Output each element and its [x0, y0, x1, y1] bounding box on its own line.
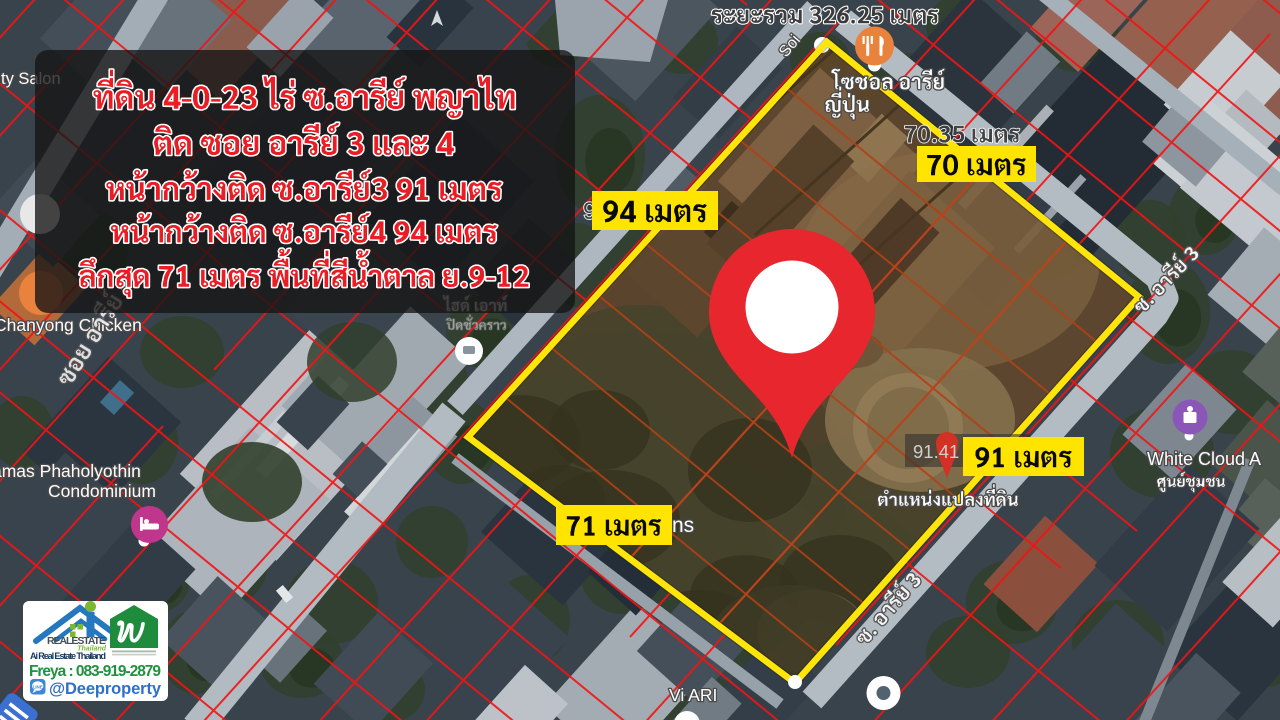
- svg-text:Condominium: Condominium: [48, 481, 156, 501]
- svg-text:@Deeproperty: @Deeproperty: [49, 680, 162, 698]
- svg-text:Freya : 083-919-2879: Freya : 083-919-2879: [29, 663, 161, 680]
- svg-text:Ai Real Estate Thailand: Ai Real Estate Thailand: [30, 651, 106, 661]
- svg-text:LINE: LINE: [33, 685, 43, 690]
- svg-text:amas Phaholyothin: amas Phaholyothin: [0, 461, 141, 481]
- svg-text:ns: ns: [672, 514, 694, 537]
- svg-text:White Cloud A: White Cloud A: [1147, 449, 1261, 469]
- svg-text:Vi ARI: Vi ARI: [669, 685, 717, 705]
- svg-text:91.41: 91.41: [913, 441, 959, 462]
- svg-text:Chanyong Chicken: Chanyong Chicken: [0, 315, 142, 335]
